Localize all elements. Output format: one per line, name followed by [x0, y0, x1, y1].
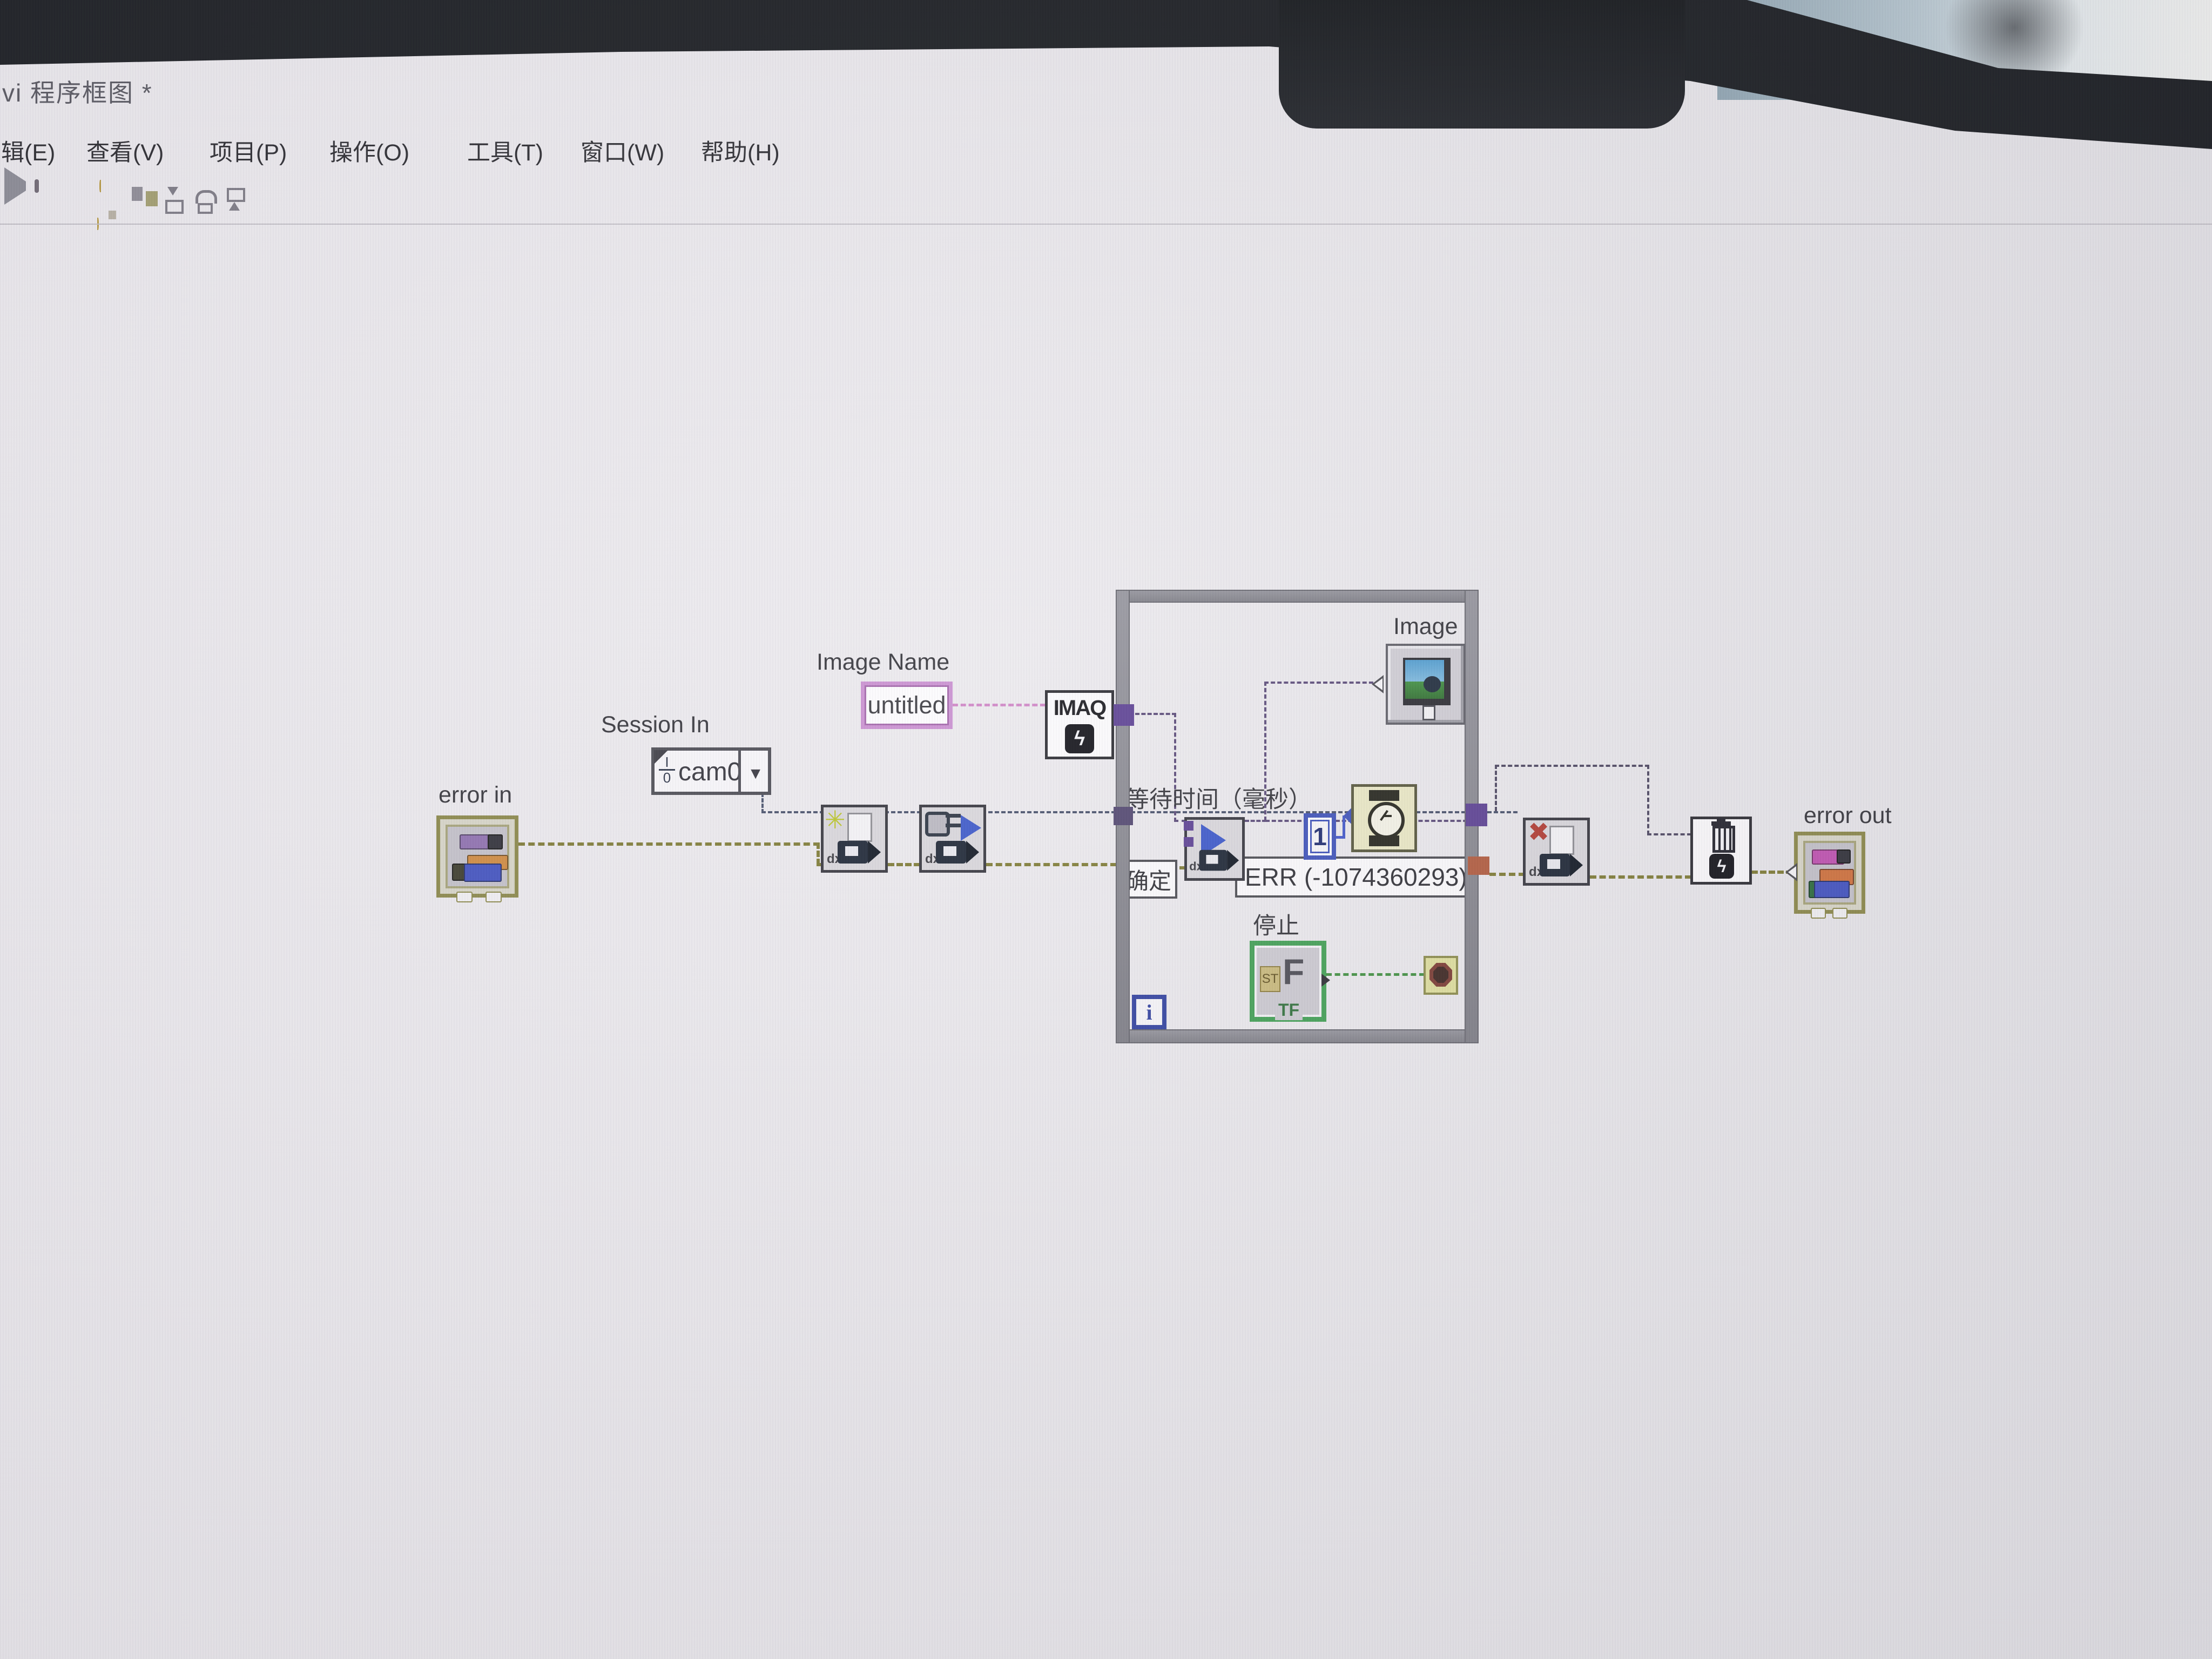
run-icon[interactable] — [0, 181, 30, 217]
dx-camera-icon: dx — [828, 839, 882, 867]
imaqdx-close-camera-node[interactable]: ✖ dx — [1523, 818, 1590, 886]
image-wire — [1135, 713, 1176, 715]
dx-camera-icon: dx — [1190, 848, 1240, 874]
error-code-constant[interactable]: ERR (-1074360293) — [1235, 857, 1476, 898]
toolbar-separator — [0, 224, 2212, 225]
error-wire — [1590, 875, 1691, 879]
image-out-wire — [1495, 765, 1649, 767]
image-out-wire — [1647, 765, 1649, 835]
imaqdx-open-camera-node[interactable]: ✳ dx — [821, 805, 888, 873]
while-loop-border-bottom[interactable] — [1116, 1029, 1479, 1043]
close-camera-x-icon: ✖ — [1528, 817, 1549, 847]
stop-label: 停止 — [1253, 907, 1299, 941]
abort-icon[interactable] — [33, 181, 64, 217]
wait-time-label: 等待时间（毫秒） — [1126, 781, 1312, 814]
menu-help[interactable]: 帮助(H) — [701, 134, 780, 167]
step-out-icon[interactable] — [222, 181, 253, 217]
stop-output-nub — [1321, 974, 1330, 987]
dx-camera-icon: dx — [1530, 852, 1584, 880]
imaq-logo-icon: ϟ — [1065, 724, 1094, 753]
error-in-source-field — [464, 864, 502, 882]
error-out-terminal[interactable] — [1794, 832, 1865, 914]
dropdown-arrow-icon[interactable]: ▼ — [747, 765, 764, 783]
session-in-label: Session In — [601, 712, 710, 738]
menu-edit[interactable]: 辑(E) — [1, 134, 55, 167]
stop-button-terminal[interactable]: ST F TF — [1250, 941, 1326, 1022]
image-wire — [1264, 682, 1380, 684]
image-tunnel-right — [1466, 804, 1487, 826]
screen-moire-overlay — [0, 0, 2212, 1659]
image-thumbnail-icon — [1403, 658, 1451, 705]
step-over-icon[interactable] — [192, 181, 222, 217]
retain-wire-values-icon[interactable] — [129, 181, 159, 217]
error-wire — [986, 863, 1117, 866]
loop-iteration-terminal[interactable]: i — [1132, 995, 1166, 1029]
window-title: vi 程序框图 * — [2, 73, 153, 109]
stop-wire — [1326, 973, 1425, 976]
image-out-wire — [1495, 765, 1497, 811]
numeric-wire — [1343, 815, 1345, 839]
image-name-constant[interactable]: untitled — [861, 682, 953, 729]
image-indicator-label: Image — [1393, 613, 1458, 640]
image-name-label: Image Name — [817, 649, 949, 676]
image-out-dot — [1184, 837, 1193, 847]
imaq-logo-icon: ϟ — [1709, 854, 1734, 879]
image-indicator-terminal[interactable] — [1386, 644, 1466, 725]
highlight-execution-icon[interactable] — [97, 181, 127, 217]
error-out-source-field — [1814, 881, 1850, 898]
error-wire — [1489, 873, 1525, 876]
while-loop-border-top[interactable] — [1116, 590, 1479, 603]
wait-time-constant[interactable]: 1 — [1304, 813, 1336, 860]
io-glyph: I 0 — [659, 755, 675, 790]
stop-button-st-glyph: ST — [1260, 966, 1280, 992]
image-wire — [1245, 820, 1266, 822]
error-out-label: error out — [1804, 802, 1892, 829]
loop-condition-terminal[interactable] — [1424, 956, 1458, 995]
menu-view[interactable]: 查看(V) — [86, 134, 164, 167]
session-in-value[interactable]: cam0 — [678, 757, 741, 787]
dx-camera-icon: dx — [926, 839, 980, 867]
error-wire — [817, 842, 820, 865]
stop-button-tf-glyph: TF — [1275, 1000, 1303, 1020]
error-out-input-arrow — [1785, 863, 1797, 881]
menu-window[interactable]: 窗口(W) — [581, 134, 664, 167]
session-in-constant[interactable]: I 0 cam0 ▼ — [651, 747, 771, 795]
image-tunnel-left — [1114, 704, 1134, 726]
image-out-wire — [1647, 833, 1691, 835]
image-indicator-input-arrow — [1372, 675, 1384, 693]
imaq-dispose-node[interactable]: ϟ — [1690, 817, 1752, 885]
error-in-label: error in — [439, 782, 512, 808]
imaqdx-configure-grab-node[interactable]: dx — [919, 805, 986, 873]
pause-icon[interactable] — [66, 181, 96, 217]
session-tunnel-left — [1114, 807, 1133, 825]
menu-operate[interactable]: 操作(O) — [329, 134, 409, 167]
menu-tools[interactable]: 工具(T) — [467, 134, 543, 167]
error-tunnel-right — [1468, 857, 1489, 875]
menu-bar: 辑(E) 查看(V) 项目(P) 操作(O) 工具(T) 窗口(W) 帮助(H) — [0, 134, 1188, 167]
error-out-checkbox — [1837, 849, 1851, 864]
photo-vignette — [0, 0, 2212, 1659]
menu-project[interactable]: 项目(P) — [210, 134, 287, 167]
stop-button-f-glyph: F — [1283, 951, 1304, 992]
error-in-checkbox — [488, 834, 503, 849]
step-into-icon[interactable] — [161, 181, 191, 217]
error-in-terminal[interactable] — [436, 815, 518, 898]
image-name-wire — [953, 704, 1046, 706]
imaq-create-node[interactable]: IMAQ ϟ — [1045, 690, 1114, 759]
open-camera-burst-icon: ✳ — [825, 805, 846, 834]
grab-play-icon — [961, 815, 981, 841]
session-wire — [761, 793, 764, 813]
image-in-dot — [1184, 821, 1193, 831]
imaqdx-grab-node[interactable]: dx — [1184, 817, 1245, 881]
error-wire — [888, 863, 920, 866]
webcam — [1279, 0, 1685, 129]
wait-ms-node[interactable] — [1351, 784, 1417, 852]
error-wire — [518, 842, 820, 846]
imaq-create-title: IMAQ — [1048, 696, 1111, 720]
